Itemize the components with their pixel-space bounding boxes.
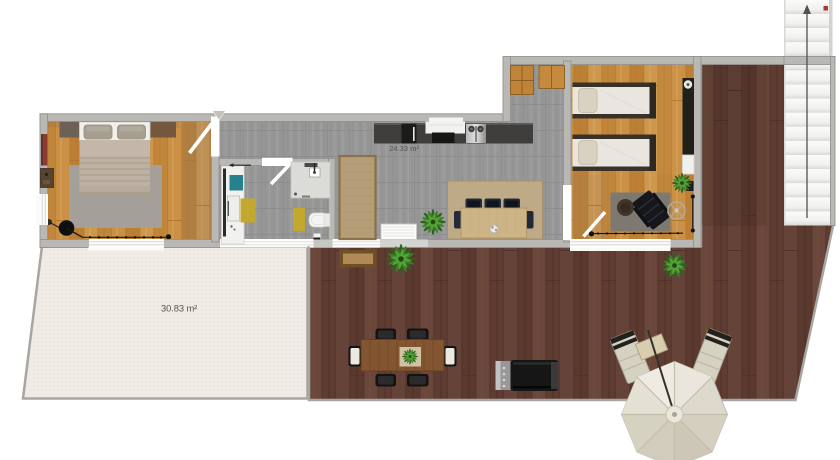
svg-text:24.33 m²: 24.33 m² bbox=[389, 144, 419, 153]
svg-text:30.83 m²: 30.83 m² bbox=[161, 303, 197, 314]
